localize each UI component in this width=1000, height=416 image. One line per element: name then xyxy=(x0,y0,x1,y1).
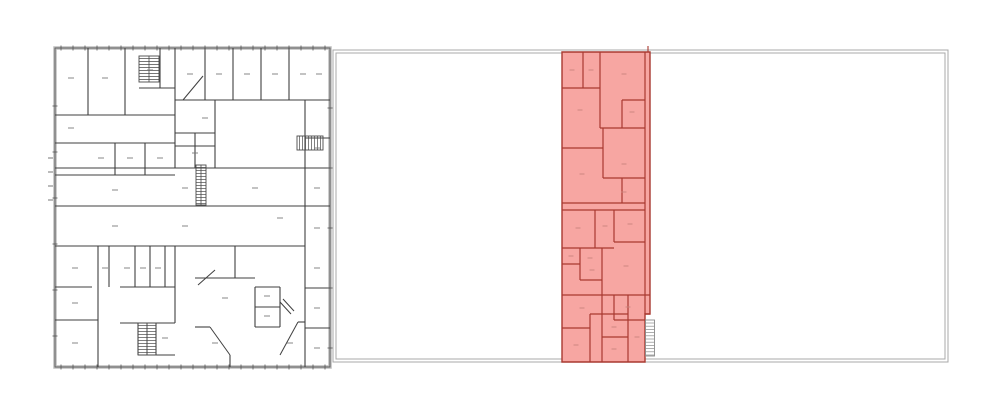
floorplan-drawing xyxy=(0,0,1000,416)
drawing-canvas xyxy=(0,0,1000,416)
left-floorplan xyxy=(48,46,333,370)
highlighted-wing-region[interactable] xyxy=(562,46,655,362)
